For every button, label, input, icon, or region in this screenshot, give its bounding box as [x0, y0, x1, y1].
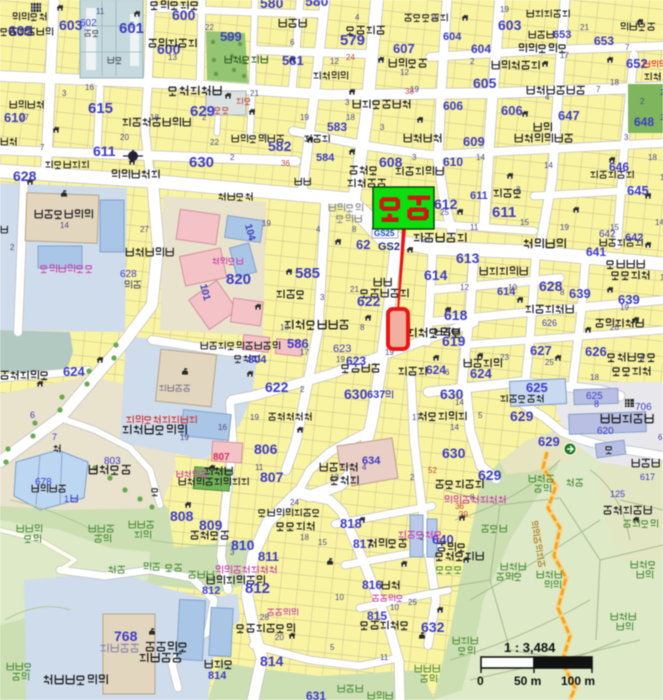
svg-text:17: 17: [412, 413, 421, 422]
svg-text:583: 583: [327, 120, 347, 134]
svg-text:8: 8: [560, 288, 565, 297]
svg-text:606: 606: [443, 99, 463, 113]
svg-text:610: 610: [443, 155, 463, 169]
svg-text:11: 11: [470, 223, 479, 232]
svg-text:637: 637: [367, 389, 385, 401]
svg-text:25: 25: [545, 358, 554, 367]
svg-text:14: 14: [476, 153, 485, 162]
svg-text:604: 604: [471, 42, 491, 56]
svg-text:582: 582: [268, 138, 292, 154]
svg-text:618: 618: [444, 307, 468, 323]
svg-text:768: 768: [114, 628, 138, 644]
svg-text:624: 624: [426, 363, 446, 377]
svg-text:606: 606: [501, 103, 523, 118]
svg-text:18: 18: [610, 78, 619, 87]
svg-text:50 m: 50 m: [514, 674, 541, 688]
svg-text:27: 27: [20, 113, 29, 122]
svg-text:52: 52: [428, 466, 437, 475]
svg-text:622: 622: [265, 379, 289, 395]
svg-text:10: 10: [508, 283, 517, 292]
svg-text:25: 25: [440, 208, 449, 217]
svg-text:624: 624: [470, 366, 492, 381]
svg-text:22: 22: [205, 23, 214, 32]
svg-text:630: 630: [344, 386, 368, 402]
svg-text:646: 646: [609, 160, 629, 174]
svg-text:7: 7: [596, 85, 601, 94]
svg-text:628: 628: [120, 269, 137, 280]
svg-text:806: 806: [254, 441, 278, 457]
svg-text:5: 5: [330, 643, 335, 652]
svg-text:2: 2: [470, 57, 475, 66]
svg-text:625: 625: [526, 380, 548, 395]
svg-text:19: 19: [336, 355, 345, 364]
svg-text:6: 6: [658, 433, 663, 442]
svg-text:17: 17: [560, 51, 569, 60]
svg-text:1 : 3,484: 1 : 3,484: [504, 640, 556, 655]
svg-text:8: 8: [516, 185, 521, 194]
svg-text:20: 20: [275, 633, 284, 642]
svg-text:24: 24: [290, 498, 299, 507]
svg-text:626: 626: [585, 344, 607, 359]
svg-text:614: 614: [424, 267, 448, 283]
svg-text:14: 14: [655, 218, 663, 227]
svg-text:615: 615: [88, 100, 113, 117]
svg-text:607: 607: [393, 41, 415, 56]
svg-text:14: 14: [60, 221, 69, 230]
svg-text:26: 26: [610, 323, 619, 332]
svg-text:4: 4: [640, 353, 645, 362]
svg-text:14: 14: [544, 161, 553, 170]
svg-text:580: 580: [305, 0, 329, 9]
svg-text:15: 15: [318, 538, 327, 547]
svg-text:807: 807: [260, 469, 284, 485]
svg-text:19: 19: [500, 5, 509, 14]
svg-text:2: 2: [300, 385, 305, 394]
svg-text:7: 7: [625, 43, 630, 52]
svg-text:815: 815: [367, 609, 387, 623]
svg-text:623: 623: [346, 354, 366, 368]
svg-text:611: 611: [492, 204, 516, 221]
svg-text:8: 8: [594, 399, 599, 409]
svg-text:624: 624: [63, 364, 85, 379]
svg-text:2: 2: [420, 533, 425, 542]
svg-text:19: 19: [262, 219, 271, 228]
svg-text:678: 678: [35, 477, 52, 488]
svg-text:6: 6: [445, 368, 450, 377]
svg-text:629: 629: [538, 434, 560, 449]
svg-text:39: 39: [459, 510, 468, 519]
svg-text:12: 12: [460, 283, 469, 292]
svg-text:632: 632: [421, 619, 445, 635]
svg-text:19: 19: [430, 13, 439, 22]
svg-text:18: 18: [346, 113, 355, 122]
svg-text:581: 581: [282, 53, 304, 68]
svg-text:628: 628: [13, 168, 37, 184]
svg-text:18: 18: [590, 373, 599, 382]
svg-text:605: 605: [473, 75, 497, 91]
svg-text:648: 648: [634, 115, 654, 129]
svg-text:19: 19: [250, 413, 259, 422]
svg-text:4: 4: [362, 463, 367, 472]
svg-text:18: 18: [150, 113, 159, 122]
svg-text:24: 24: [346, 53, 355, 62]
svg-text:21: 21: [350, 285, 359, 294]
svg-text:580: 580: [260, 0, 284, 11]
svg-text:3: 3: [230, 548, 235, 557]
svg-text:808: 808: [170, 508, 194, 524]
svg-text:3: 3: [624, 133, 629, 142]
svg-text:603: 603: [498, 17, 522, 33]
svg-text:4: 4: [545, 93, 550, 102]
svg-text:0: 0: [477, 674, 484, 688]
svg-text:2: 2: [640, 97, 645, 106]
svg-text:17: 17: [300, 348, 309, 357]
svg-text:602: 602: [80, 18, 97, 29]
svg-text:12: 12: [400, 68, 409, 77]
svg-text:7: 7: [40, 143, 45, 152]
svg-text:14: 14: [455, 398, 464, 407]
svg-text:611: 611: [470, 190, 488, 202]
svg-text:28: 28: [260, 613, 269, 622]
svg-text:23: 23: [500, 353, 509, 362]
svg-text:629: 629: [510, 408, 534, 424]
svg-text:27: 27: [140, 225, 149, 234]
svg-text:13: 13: [168, 53, 177, 62]
svg-text:4: 4: [316, 225, 321, 234]
svg-text:631: 631: [306, 689, 326, 700]
svg-text:21: 21: [580, 23, 589, 32]
svg-text:11: 11: [96, 7, 105, 16]
svg-text:627: 627: [530, 343, 552, 358]
svg-text:18: 18: [300, 533, 309, 542]
svg-text:19: 19: [560, 223, 569, 232]
svg-text:639: 639: [569, 286, 591, 301]
svg-text:22: 22: [210, 138, 219, 147]
svg-text:100 m: 100 m: [561, 674, 595, 688]
svg-text:599: 599: [220, 29, 242, 44]
svg-text:10: 10: [390, 603, 399, 612]
svg-text:814: 814: [260, 653, 284, 669]
svg-text:6: 6: [30, 410, 35, 420]
svg-text:817: 817: [353, 537, 373, 551]
svg-text:3: 3: [412, 153, 417, 162]
svg-text:653: 653: [553, 29, 571, 41]
svg-text:15: 15: [520, 218, 529, 227]
svg-text:608: 608: [379, 154, 403, 170]
svg-text:16: 16: [218, 423, 227, 432]
svg-text:36: 36: [281, 159, 290, 168]
svg-text:629: 629: [478, 467, 502, 483]
svg-text:8: 8: [360, 323, 365, 332]
svg-text:3: 3: [345, 98, 350, 107]
svg-text:617: 617: [640, 472, 655, 482]
svg-text:GS2: GS2: [378, 241, 400, 253]
svg-text:21: 21: [250, 89, 259, 98]
svg-text:19: 19: [620, 303, 629, 312]
svg-text:19: 19: [300, 113, 309, 122]
svg-text:13: 13: [330, 473, 339, 482]
svg-text:630: 630: [189, 154, 214, 171]
svg-text:816: 816: [362, 578, 382, 592]
svg-text:2: 2: [202, 113, 207, 122]
svg-text:8: 8: [470, 493, 475, 502]
svg-text:812: 812: [202, 585, 220, 597]
svg-text:626: 626: [542, 318, 557, 328]
svg-text:811: 811: [258, 549, 279, 564]
svg-text:810: 810: [231, 537, 255, 553]
svg-text:7: 7: [52, 432, 57, 442]
svg-text:2: 2: [230, 153, 235, 162]
svg-text:818: 818: [340, 516, 362, 531]
svg-text:5: 5: [130, 21, 135, 30]
svg-text:622: 622: [357, 293, 381, 309]
svg-text:GS25: GS25: [374, 229, 395, 238]
svg-text:620: 620: [597, 426, 614, 437]
svg-text:4: 4: [355, 13, 360, 22]
svg-text:5: 5: [478, 411, 483, 420]
svg-text:812: 812: [245, 580, 270, 597]
svg-text:12: 12: [330, 57, 339, 66]
svg-text:125: 125: [610, 489, 625, 499]
svg-text:16: 16: [85, 83, 94, 92]
svg-text:19: 19: [180, 433, 189, 442]
svg-text:803: 803: [104, 456, 121, 467]
svg-text:630: 630: [442, 445, 466, 461]
svg-text:2: 2: [10, 243, 15, 252]
svg-text:807: 807: [213, 452, 230, 463]
svg-text:585: 585: [295, 265, 320, 282]
svg-text:38: 38: [405, 87, 414, 96]
svg-text:25: 25: [408, 598, 417, 607]
svg-text:814: 814: [208, 670, 227, 682]
svg-text:6: 6: [290, 38, 295, 47]
svg-text:706: 706: [635, 402, 652, 413]
svg-text:11: 11: [380, 653, 389, 662]
svg-text:584: 584: [316, 152, 335, 164]
svg-text:18: 18: [648, 153, 657, 162]
svg-text:10: 10: [335, 593, 344, 602]
svg-text:62: 62: [356, 237, 370, 252]
svg-text:11: 11: [255, 463, 264, 472]
svg-text:809: 809: [199, 517, 223, 533]
svg-text:609: 609: [463, 134, 485, 149]
svg-text:14: 14: [450, 423, 459, 432]
svg-text:611: 611: [93, 143, 116, 159]
svg-text:645: 645: [627, 183, 649, 198]
svg-text:1: 1: [64, 494, 69, 504]
svg-text:647: 647: [558, 108, 580, 123]
svg-text:613: 613: [456, 250, 480, 266]
svg-text:2: 2: [410, 473, 415, 482]
svg-text:3: 3: [320, 293, 325, 302]
svg-text:804: 804: [248, 354, 267, 366]
svg-text:3: 3: [62, 89, 67, 98]
svg-text:4: 4: [262, 133, 267, 142]
svg-text:642: 642: [625, 232, 643, 244]
svg-text:15: 15: [610, 223, 619, 232]
svg-text:653: 653: [594, 34, 614, 48]
svg-text:641: 641: [586, 245, 606, 259]
svg-text:20: 20: [120, 133, 129, 142]
svg-text:8: 8: [352, 225, 357, 234]
svg-text:21: 21: [422, 235, 431, 244]
svg-text:820: 820: [226, 271, 251, 288]
svg-text:3: 3: [380, 123, 385, 132]
svg-text:604: 604: [443, 31, 462, 43]
svg-text:10: 10: [280, 323, 289, 332]
